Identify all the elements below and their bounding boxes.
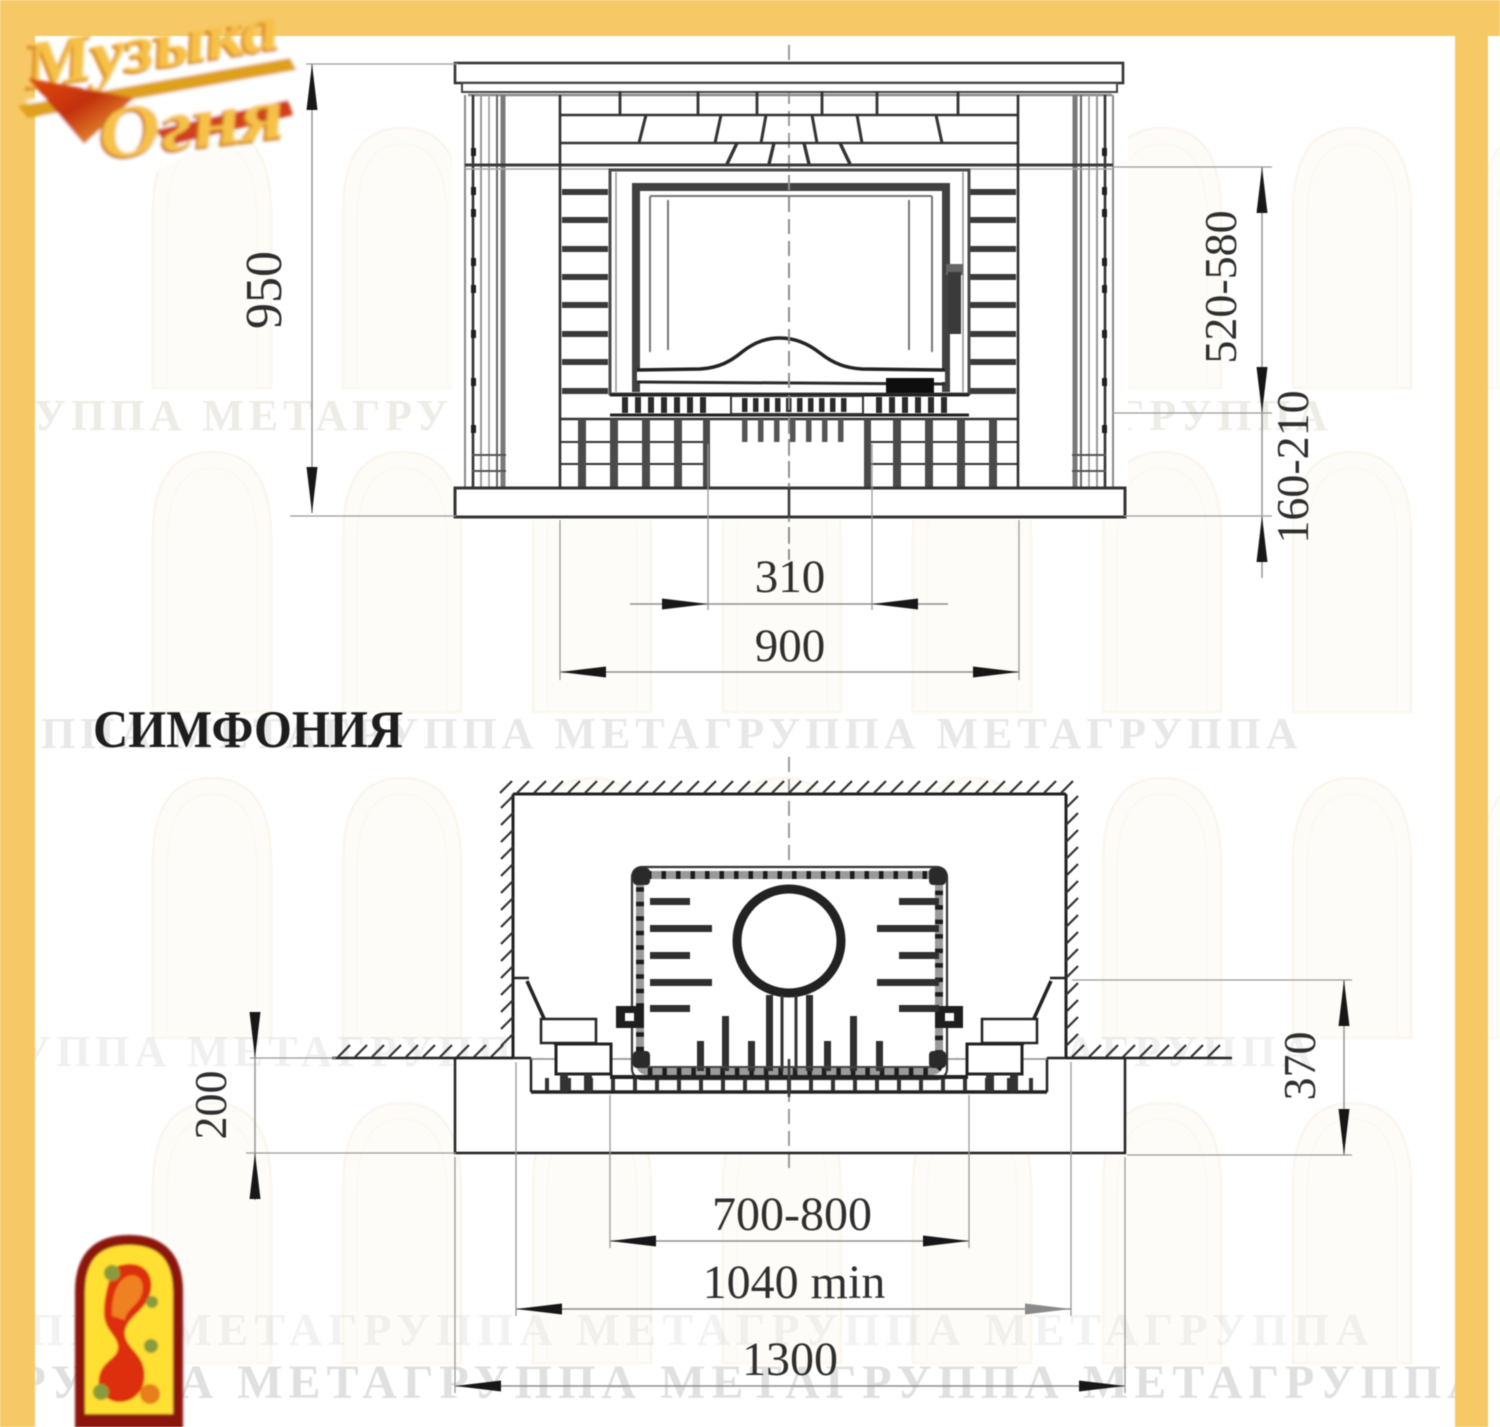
svg-text:700-800: 700-800 bbox=[712, 1188, 872, 1241]
svg-text:950: 950 bbox=[236, 251, 293, 329]
svg-text:370: 370 bbox=[1274, 1032, 1325, 1101]
svg-text:310: 310 bbox=[755, 551, 826, 603]
svg-text:160-210: 160-210 bbox=[1267, 390, 1318, 543]
svg-text:ГРУППА МЕТАГРУППА МЕТАГРУППА М: ГРУППА МЕТАГРУППА МЕТАГРУППА МЕТАГРУППА bbox=[0, 1304, 1375, 1355]
svg-text:1300: 1300 bbox=[742, 1333, 838, 1386]
svg-text:900: 900 bbox=[755, 620, 826, 672]
svg-text:СИМФОНИЯ: СИМФОНИЯ bbox=[93, 701, 403, 759]
svg-text:1040 min: 1040 min bbox=[703, 1256, 886, 1309]
svg-text:200: 200 bbox=[185, 1071, 236, 1140]
svg-text:520-580: 520-580 bbox=[1195, 210, 1246, 363]
